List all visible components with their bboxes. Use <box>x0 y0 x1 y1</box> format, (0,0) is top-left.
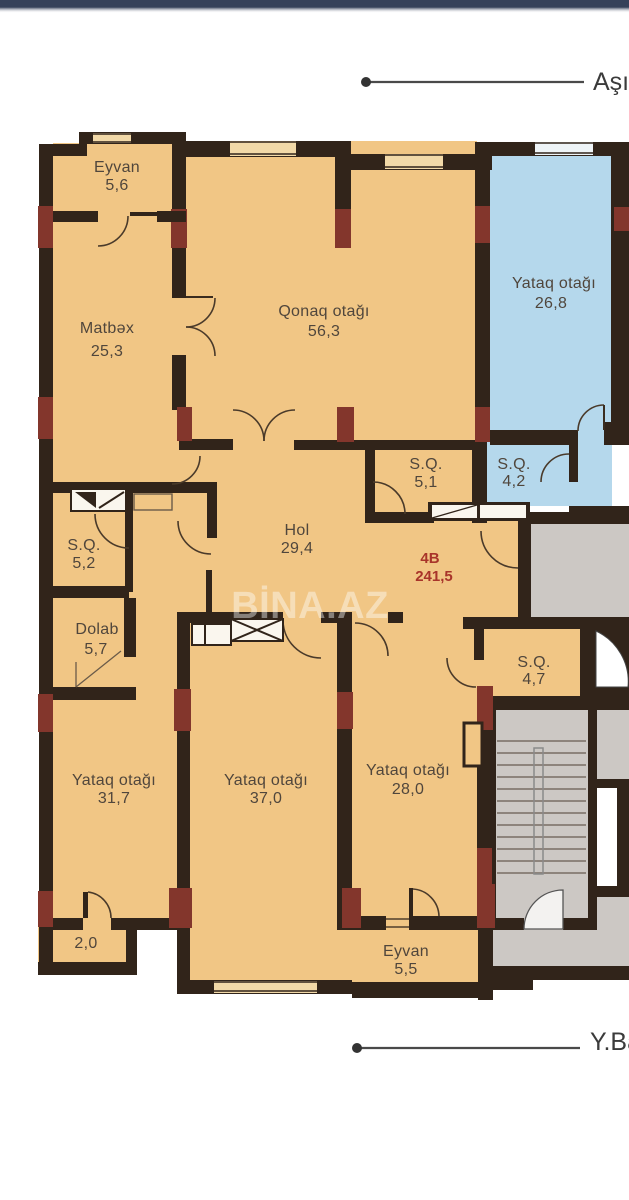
svg-text:37,0: 37,0 <box>250 790 282 807</box>
svg-text:5,6: 5,6 <box>105 177 128 194</box>
svg-text:31,7: 31,7 <box>98 790 130 807</box>
svg-text:Y.Ba: Y.Ba <box>590 1028 629 1056</box>
svg-text:Hol: Hol <box>285 522 310 539</box>
svg-text:Yataq otağı: Yataq otağı <box>224 772 308 789</box>
svg-text:BİNA.AZ: BİNA.AZ <box>231 585 389 627</box>
svg-text:Aşı: Aşı <box>593 68 629 96</box>
svg-text:Yataq otağı: Yataq otağı <box>72 772 156 789</box>
svg-text:Eyvan: Eyvan <box>383 943 429 960</box>
svg-text:5,1: 5,1 <box>414 474 437 491</box>
svg-text:4,7: 4,7 <box>522 671 545 688</box>
svg-text:28,0: 28,0 <box>392 781 424 798</box>
svg-text:25,3: 25,3 <box>91 343 123 360</box>
svg-text:4,2: 4,2 <box>502 473 525 490</box>
svg-text:241,5: 241,5 <box>415 568 453 585</box>
svg-text:S.Q.: S.Q. <box>517 654 550 671</box>
svg-text:2,0: 2,0 <box>74 935 97 952</box>
svg-text:5,7: 5,7 <box>84 641 107 658</box>
svg-text:4B: 4B <box>420 550 439 567</box>
svg-text:Dolab: Dolab <box>75 621 118 638</box>
svg-text:S.Q.: S.Q. <box>67 537 100 554</box>
svg-text:Yataq otağı: Yataq otağı <box>366 762 450 779</box>
svg-text:S.Q.: S.Q. <box>409 456 442 473</box>
svg-text:S.Q.: S.Q. <box>497 456 530 473</box>
svg-text:29,4: 29,4 <box>281 540 313 557</box>
svg-text:Matbəx: Matbəx <box>80 320 134 337</box>
svg-text:5,5: 5,5 <box>394 961 417 978</box>
svg-text:56,3: 56,3 <box>308 323 340 340</box>
svg-text:26,8: 26,8 <box>535 295 567 312</box>
svg-text:Eyvan: Eyvan <box>94 159 140 176</box>
svg-text:5,2: 5,2 <box>72 555 95 572</box>
svg-text:Yataq otağı: Yataq otağı <box>512 275 596 292</box>
svg-text:Qonaq otağı: Qonaq otağı <box>278 303 369 320</box>
